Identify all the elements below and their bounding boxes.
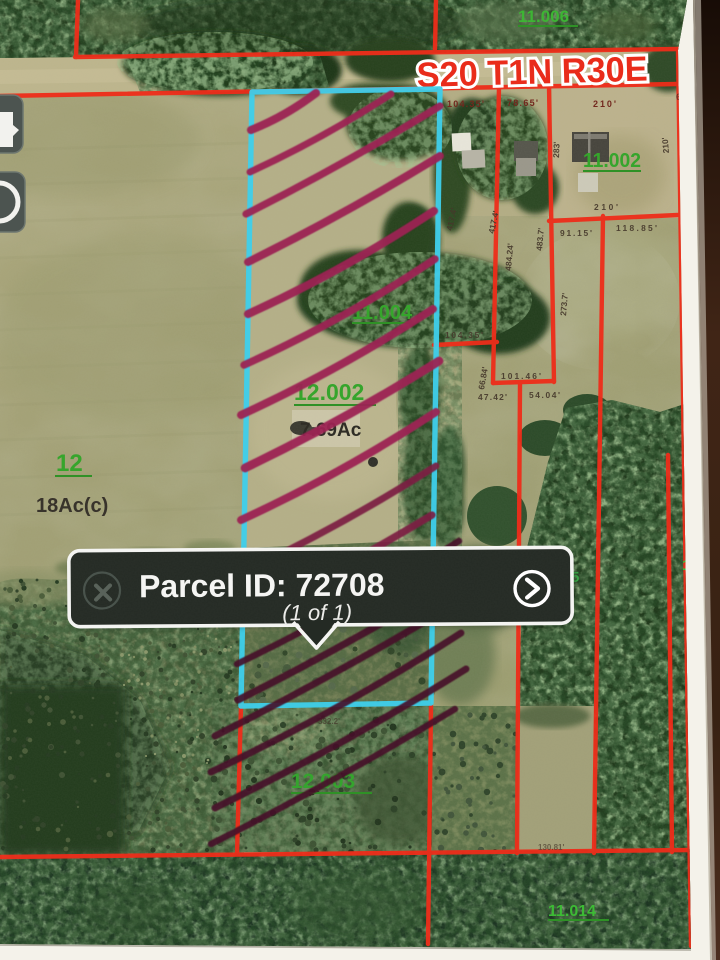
svg-text:18Ac(c): 18Ac(c) (36, 495, 108, 517)
svg-text:11.006: 11.006 (518, 7, 569, 26)
svg-text:210': 210' (660, 137, 671, 154)
svg-text:118.85': 118.85' (616, 223, 657, 233)
svg-text:483.7': 483.7' (534, 227, 546, 251)
svg-text:104.35': 104.35' (447, 99, 484, 109)
svg-text:130.81': 130.81' (538, 843, 564, 852)
svg-text:78.65': 78.65' (507, 98, 538, 108)
svg-text:54.04': 54.04' (529, 390, 560, 400)
svg-text:101.46': 101.46' (501, 371, 541, 381)
svg-text:11.002: 11.002 (583, 150, 641, 172)
svg-text:(1 of 1): (1 of 1) (282, 600, 352, 625)
svg-text:47.42': 47.42' (478, 392, 507, 402)
svg-text:273.7': 273.7' (558, 292, 570, 316)
svg-text:11.014: 11.014 (548, 903, 596, 920)
svg-text:12: 12 (56, 450, 83, 477)
svg-text:283': 283' (551, 142, 562, 159)
svg-text:Parcel ID: 72708: Parcel ID: 72708 (139, 567, 385, 605)
svg-text:S20 T1N R30E: S20 T1N R30E (416, 50, 648, 95)
svg-text:104.35': 104.35' (445, 330, 483, 340)
